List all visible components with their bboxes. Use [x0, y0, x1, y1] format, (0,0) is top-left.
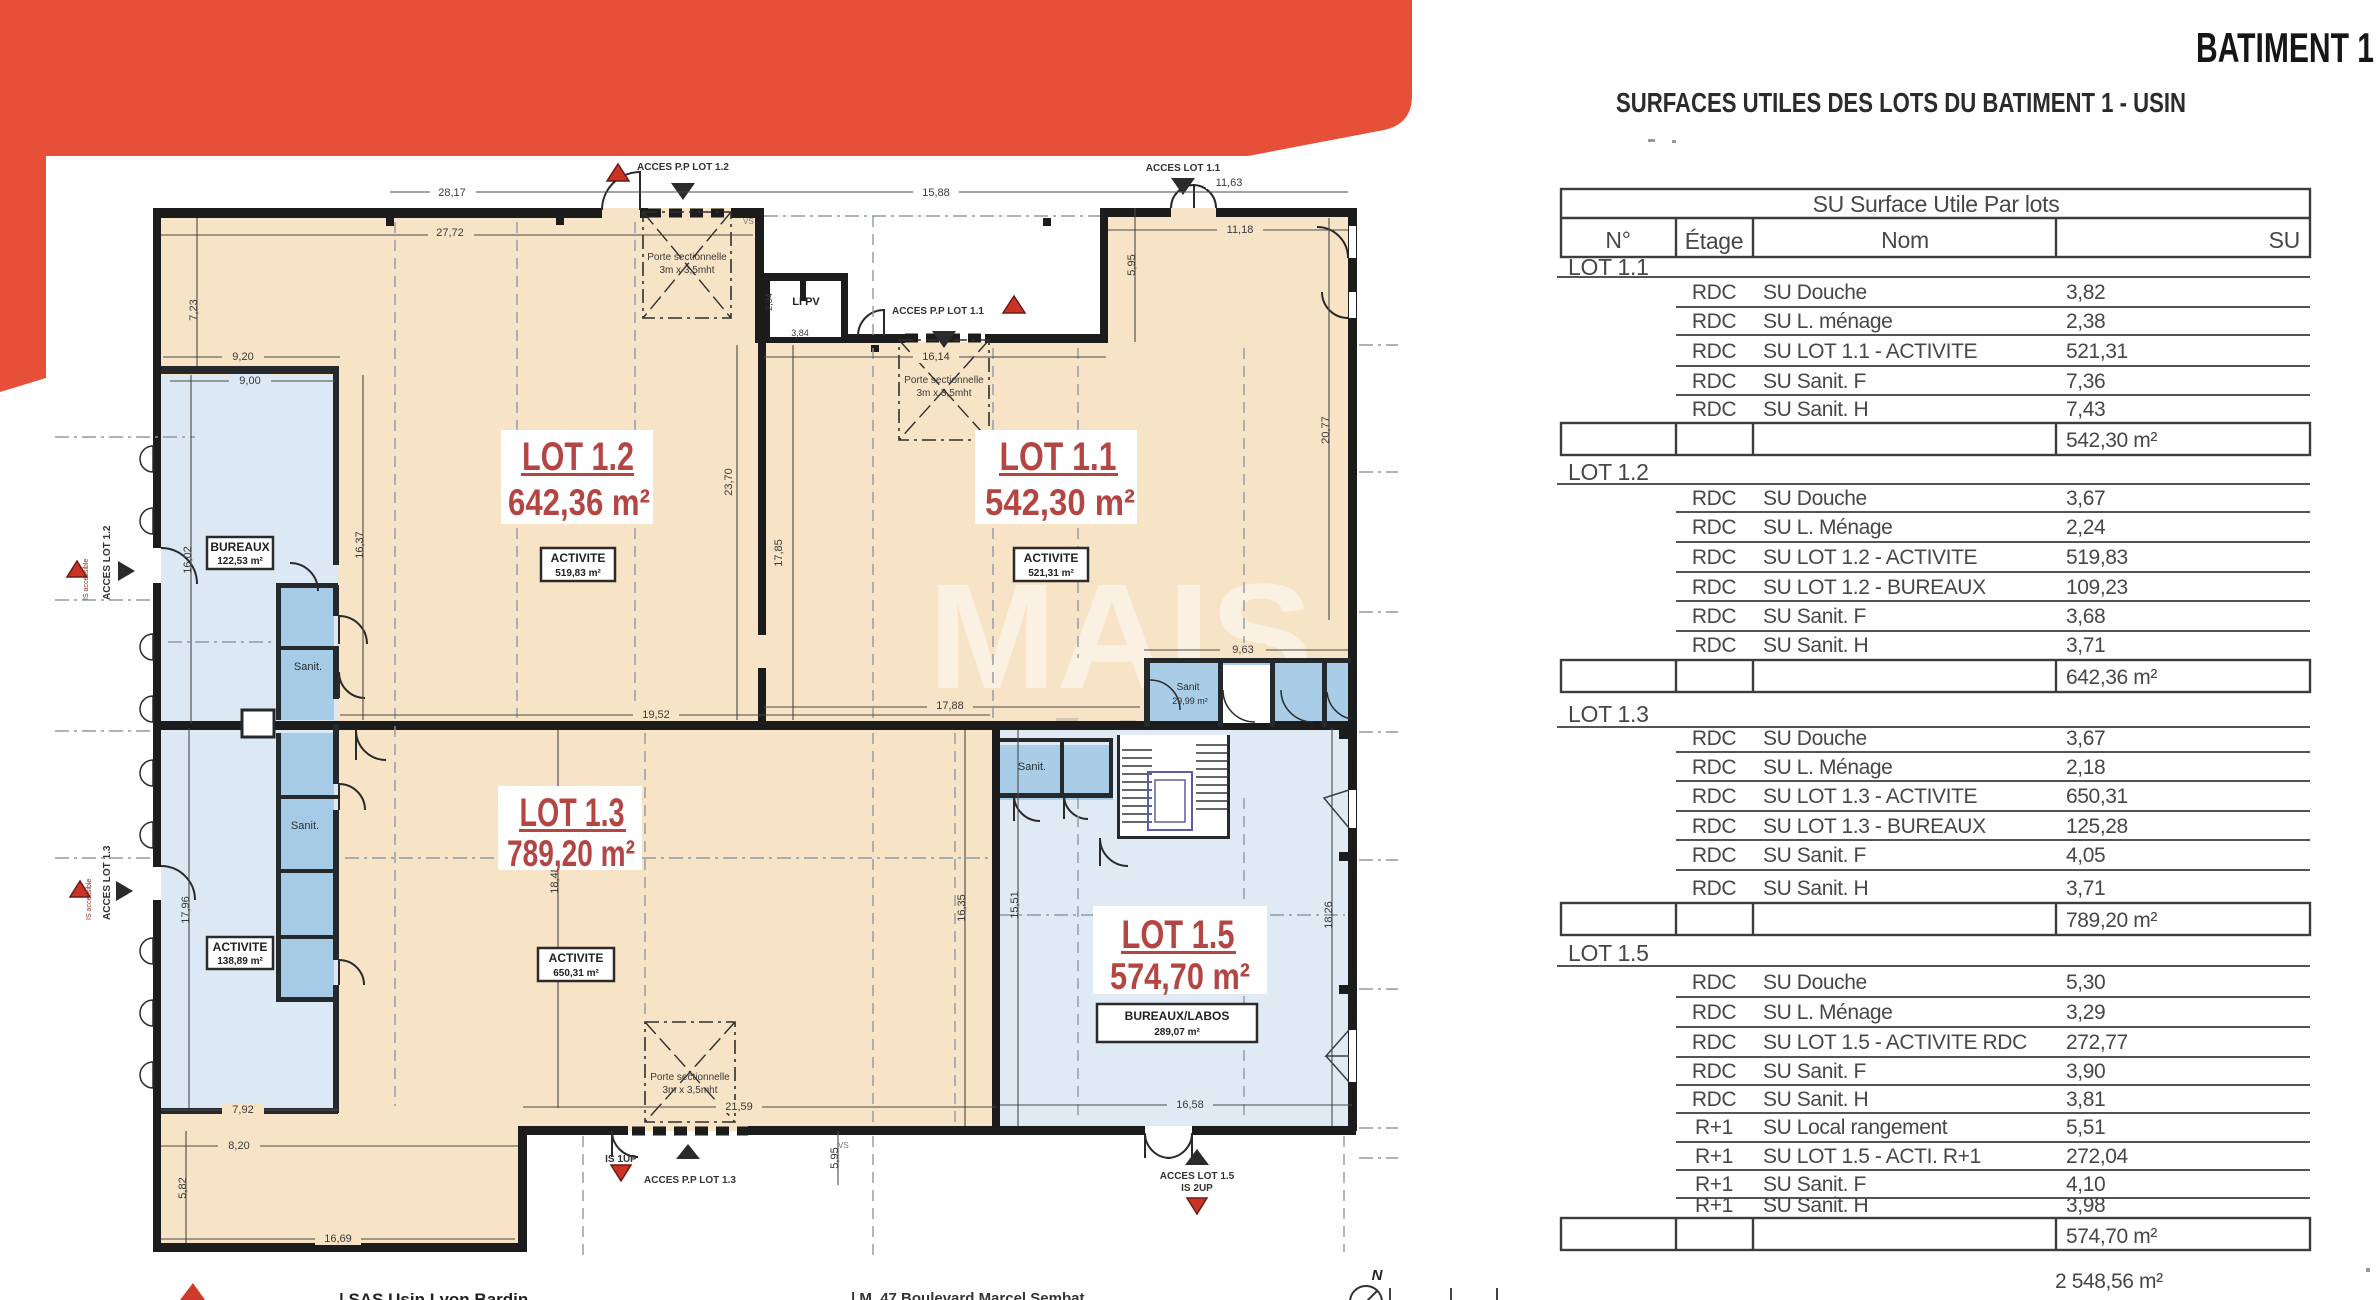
svg-text:SU LOT 1.3 - BUREAUX: SU LOT 1.3 - BUREAUX — [1763, 815, 1986, 838]
svg-text:3,82: 3,82 — [2066, 281, 2105, 304]
svg-text:IS accessible: IS accessible — [83, 559, 90, 600]
svg-text:RDC: RDC — [1692, 605, 1737, 628]
svg-text:SU Douche: SU Douche — [1763, 281, 1867, 304]
svg-text:SU Surface Utile Par lots: SU Surface Utile Par lots — [1813, 191, 2060, 217]
svg-text:9,63: 9,63 — [1232, 644, 1253, 656]
svg-text:RDC: RDC — [1692, 1060, 1737, 1083]
svg-text:SU Sanit. F: SU Sanit. F — [1763, 370, 1866, 393]
svg-text:2,24: 2,24 — [2066, 516, 2106, 539]
svg-text:RDC: RDC — [1692, 340, 1737, 363]
svg-text:RDC: RDC — [1692, 971, 1737, 994]
svg-text:574,70 m²: 574,70 m² — [1110, 956, 1250, 997]
svg-text:SU Sanit. F: SU Sanit. F — [1763, 1060, 1866, 1083]
svg-text:2,18: 2,18 — [2066, 756, 2105, 779]
svg-text:650,31: 650,31 — [2066, 785, 2128, 808]
svg-text:3m x 3,5mht: 3m x 3,5mht — [662, 1085, 717, 1096]
svg-text:16,02: 16,02 — [182, 546, 194, 574]
svg-text:RDC: RDC — [1692, 516, 1737, 539]
svg-text:LOT 1.3: LOT 1.3 — [1568, 701, 1649, 727]
svg-text:ACTIVITE: ACTIVITE — [1024, 551, 1079, 565]
svg-text:2,34: 2,34 — [764, 293, 774, 311]
svg-text:574,70 m²: 574,70 m² — [2066, 1225, 2157, 1248]
svg-text:SU Sanit. F: SU Sanit. F — [1763, 1173, 1866, 1196]
svg-text:R+1: R+1 — [1695, 1145, 1733, 1168]
svg-text:RDC: RDC — [1692, 634, 1737, 657]
svg-text:IS 1UP: IS 1UP — [605, 1154, 637, 1165]
svg-text:5,95: 5,95 — [829, 1147, 841, 1168]
svg-text:3,84: 3,84 — [791, 328, 809, 338]
svg-text:SU LOT 1.1 - ACTIVITE: SU LOT 1.1 - ACTIVITE — [1763, 340, 1978, 363]
svg-text:LOT 1.3: LOT 1.3 — [520, 791, 625, 835]
svg-text:5,95: 5,95 — [1126, 254, 1138, 275]
svg-text:RDC: RDC — [1692, 877, 1737, 900]
svg-text:3,71: 3,71 — [2066, 634, 2105, 657]
svg-text:SU Local rangement: SU Local rangement — [1763, 1116, 1948, 1139]
svg-text:2 548,56 m²: 2 548,56 m² — [2055, 1270, 2163, 1293]
svg-text:RDC: RDC — [1692, 281, 1737, 304]
svg-text:RDC: RDC — [1692, 310, 1737, 333]
svg-text:27,72: 27,72 — [436, 227, 464, 239]
svg-text:ACCES LOT 1.3: ACCES LOT 1.3 — [102, 845, 113, 920]
svg-text:18,26: 18,26 — [1323, 901, 1335, 929]
svg-text:BUREAUX/LABOS: BUREAUX/LABOS — [1125, 1009, 1230, 1023]
svg-text:LOT 1.1: LOT 1.1 — [1568, 254, 1649, 280]
svg-text:28,17: 28,17 — [438, 187, 466, 199]
svg-text:2,38: 2,38 — [2066, 310, 2105, 333]
svg-text:RDC: RDC — [1692, 546, 1737, 569]
svg-text:Porte sectionnelle: Porte sectionnelle — [647, 252, 727, 263]
svg-text:642,36 m²: 642,36 m² — [508, 482, 650, 523]
svg-text:LOT 1.5: LOT 1.5 — [1568, 940, 1649, 966]
svg-text:ACCES P.P LOT 1.3: ACCES P.P LOT 1.3 — [644, 1175, 736, 1186]
svg-text:SU Sanit. F: SU Sanit. F — [1763, 605, 1866, 628]
svg-text:LI PV: LI PV — [792, 296, 820, 308]
svg-text:9,20: 9,20 — [232, 351, 253, 363]
svg-text:521,31 m²: 521,31 m² — [1028, 568, 1074, 579]
svg-text:8,20: 8,20 — [228, 1140, 249, 1152]
svg-text:15,51: 15,51 — [1009, 891, 1021, 919]
svg-text:SU Sanit. H: SU Sanit. H — [1763, 1194, 1868, 1217]
svg-text:125,28: 125,28 — [2066, 815, 2128, 838]
svg-text:ACCES P.P LOT 1.1: ACCES P.P LOT 1.1 — [892, 306, 984, 317]
svg-text:BATIMENT 1: BATIMENT 1 — [2196, 24, 2374, 71]
svg-text:15,88: 15,88 — [922, 187, 950, 199]
svg-text:| SAS Usin Lyon Bardin: | SAS Usin Lyon Bardin — [339, 1290, 528, 1300]
svg-text:| M. 47 Boulevard Marcel Semba: | M. 47 Boulevard Marcel Sembat — [851, 1290, 1084, 1300]
svg-text:16,35: 16,35 — [956, 894, 968, 922]
svg-text:LOT 1.1: LOT 1.1 — [1000, 435, 1117, 479]
svg-text:272,04: 272,04 — [2066, 1145, 2129, 1168]
svg-text:IS accessible: IS accessible — [86, 879, 93, 920]
svg-text:3,71: 3,71 — [2066, 877, 2105, 900]
svg-text:5,30: 5,30 — [2066, 971, 2105, 994]
svg-text:521,31: 521,31 — [2066, 340, 2128, 363]
svg-text:R+1: R+1 — [1695, 1116, 1733, 1139]
svg-text:Porte sectionnelle: Porte sectionnelle — [650, 1072, 730, 1083]
svg-text:542,30 m²: 542,30 m² — [985, 482, 1135, 523]
svg-text:SU Sanit. H: SU Sanit. H — [1763, 398, 1868, 421]
svg-text:SU L. Ménage: SU L. Ménage — [1763, 516, 1892, 539]
svg-text:SU Sanit. H: SU Sanit. H — [1763, 634, 1868, 657]
svg-text:4,10: 4,10 — [2066, 1173, 2105, 1196]
svg-text:LOT 1.5: LOT 1.5 — [1122, 913, 1235, 957]
svg-text:R+1: R+1 — [1695, 1194, 1733, 1217]
svg-text:SU LOT 1.5 - ACTIVITE RDC: SU LOT 1.5 - ACTIVITE RDC — [1763, 1031, 2027, 1054]
svg-text:7,43: 7,43 — [2066, 398, 2105, 421]
svg-text:3,68: 3,68 — [2066, 605, 2105, 628]
svg-text:11,18: 11,18 — [1227, 224, 1254, 236]
svg-text:N: N — [1372, 1267, 1384, 1284]
svg-text:VS: VS — [838, 1141, 849, 1150]
svg-text:3m x 3,5mht: 3m x 3,5mht — [916, 388, 971, 399]
svg-text:R+1: R+1 — [1695, 1173, 1733, 1196]
svg-text:RDC: RDC — [1692, 1088, 1737, 1111]
svg-text:542,30 m²: 542,30 m² — [2066, 429, 2157, 452]
svg-text:Étage: Étage — [1685, 228, 1744, 254]
svg-text:789,20 m²: 789,20 m² — [2066, 909, 2157, 932]
svg-text:5,51: 5,51 — [2066, 1116, 2105, 1139]
svg-text:SU LOT 1.2 - ACTIVITE: SU LOT 1.2 - ACTIVITE — [1763, 546, 1978, 569]
svg-text:RDC: RDC — [1692, 487, 1737, 510]
svg-text:SU Sanit. F: SU Sanit. F — [1763, 844, 1866, 867]
svg-text:3,81: 3,81 — [2066, 1088, 2105, 1111]
svg-text:SU LOT 1.5 - ACTI. R+1: SU LOT 1.5 - ACTI. R+1 — [1763, 1145, 1981, 1168]
svg-text:Sanit.: Sanit. — [291, 820, 319, 832]
svg-text:IS 2UP: IS 2UP — [1181, 1183, 1213, 1194]
svg-text:RDC: RDC — [1692, 785, 1737, 808]
svg-text:ACCES P.P LOT 1.2: ACCES P.P LOT 1.2 — [637, 162, 729, 173]
svg-text:SU Sanit. H: SU Sanit. H — [1763, 1088, 1868, 1111]
svg-text:642,36 m²: 642,36 m² — [2066, 666, 2157, 689]
svg-text:SURFACES UTILES DES LOTS DU BA: SURFACES UTILES DES LOTS DU BATIMENT 1 -… — [1616, 87, 2186, 118]
svg-text:519,83 m²: 519,83 m² — [555, 568, 601, 579]
svg-text:SU Douche: SU Douche — [1763, 971, 1867, 994]
svg-text:BUREAUX: BUREAUX — [210, 540, 269, 554]
svg-text:19,52: 19,52 — [642, 709, 670, 721]
svg-text:29,99 m²: 29,99 m² — [1172, 696, 1208, 706]
svg-text:122,53 m²: 122,53 m² — [217, 556, 263, 567]
svg-text:LOT 1.2: LOT 1.2 — [522, 435, 634, 479]
svg-text:ACCES LOT 1.2: ACCES LOT 1.2 — [102, 525, 113, 600]
svg-text:3,98: 3,98 — [2066, 1194, 2105, 1217]
svg-text:138,89 m²: 138,89 m² — [217, 956, 263, 967]
svg-text:Sanit: Sanit — [1177, 682, 1200, 693]
svg-text:9,00: 9,00 — [239, 375, 260, 387]
svg-text:SU Douche: SU Douche — [1763, 727, 1867, 750]
svg-text:3,67: 3,67 — [2066, 487, 2105, 510]
svg-text:SU Sanit. H: SU Sanit. H — [1763, 877, 1868, 900]
svg-text:RDC: RDC — [1692, 370, 1737, 393]
svg-text:3,67: 3,67 — [2066, 727, 2105, 750]
svg-text:4,05: 4,05 — [2066, 844, 2105, 867]
svg-text:3,29: 3,29 — [2066, 1001, 2105, 1024]
svg-text:SU L. Ménage: SU L. Ménage — [1763, 756, 1892, 779]
svg-text:ACTIVITE: ACTIVITE — [549, 951, 604, 965]
svg-text:7,23: 7,23 — [188, 299, 200, 320]
svg-text:RDC: RDC — [1692, 398, 1737, 421]
svg-text:RDC: RDC — [1692, 756, 1737, 779]
svg-text:7,36: 7,36 — [2066, 370, 2105, 393]
svg-text:272,77: 272,77 — [2066, 1031, 2128, 1054]
svg-text:VS: VS — [743, 217, 754, 226]
svg-text:SU L. Ménage: SU L. Ménage — [1763, 1001, 1892, 1024]
svg-text:5,82: 5,82 — [177, 1177, 189, 1198]
svg-text:16,37: 16,37 — [354, 531, 366, 559]
svg-text:21,59: 21,59 — [725, 1101, 753, 1113]
svg-text:17,88: 17,88 — [936, 700, 964, 712]
svg-text:SU Douche: SU Douche — [1763, 487, 1867, 510]
svg-text:3,90: 3,90 — [2066, 1060, 2105, 1083]
svg-text:ACTIVITE: ACTIVITE — [551, 551, 606, 565]
svg-text:ACTIVITE: ACTIVITE — [213, 940, 268, 954]
svg-text:519,83: 519,83 — [2066, 546, 2128, 569]
svg-text:ACCES LOT 1.1: ACCES LOT 1.1 — [1146, 163, 1221, 174]
svg-text:LOT 1.2: LOT 1.2 — [1568, 459, 1649, 485]
svg-text:RDC: RDC — [1692, 844, 1737, 867]
svg-text:109,23: 109,23 — [2066, 576, 2128, 599]
svg-text:16,14: 16,14 — [922, 351, 950, 363]
svg-text:789,20 m²: 789,20 m² — [507, 833, 635, 874]
svg-text:SU LOT 1.3 - ACTIVITE: SU LOT 1.3 - ACTIVITE — [1763, 785, 1978, 808]
svg-text:RDC: RDC — [1692, 1031, 1737, 1054]
svg-text:Sanit.: Sanit. — [1018, 761, 1046, 773]
svg-text:7,92: 7,92 — [232, 1104, 253, 1116]
svg-text:17,96: 17,96 — [180, 896, 192, 924]
svg-text:Sanit.: Sanit. — [294, 661, 322, 673]
svg-text:Porte sectionnelle: Porte sectionnelle — [904, 375, 984, 386]
svg-text:16,58: 16,58 — [1176, 1099, 1204, 1111]
svg-text:SU L. ménage: SU L. ménage — [1763, 310, 1892, 333]
svg-text:17,85: 17,85 — [773, 539, 785, 567]
svg-text:N°: N° — [1605, 227, 1630, 253]
svg-text:11,63: 11,63 — [1216, 177, 1243, 189]
svg-text:SU: SU — [2269, 227, 2300, 253]
svg-text:16,69: 16,69 — [324, 1233, 352, 1245]
svg-text:RDC: RDC — [1692, 727, 1737, 750]
svg-text:RDC: RDC — [1692, 576, 1737, 599]
svg-text:3m x 3,5mht: 3m x 3,5mht — [659, 265, 714, 276]
svg-text:289,07 m²: 289,07 m² — [1154, 1027, 1200, 1038]
svg-text:SU LOT 1.2 - BUREAUX: SU LOT 1.2 - BUREAUX — [1763, 576, 1986, 599]
svg-text:ACCES LOT 1.5: ACCES LOT 1.5 — [1160, 1171, 1235, 1182]
svg-text:RDC: RDC — [1692, 1001, 1737, 1024]
svg-text:RDC: RDC — [1692, 815, 1737, 838]
svg-text:Nom: Nom — [1881, 227, 1929, 253]
svg-text:23,70: 23,70 — [723, 468, 735, 496]
svg-text:20,77: 20,77 — [1320, 416, 1332, 444]
svg-text:650,31 m²: 650,31 m² — [553, 968, 599, 979]
